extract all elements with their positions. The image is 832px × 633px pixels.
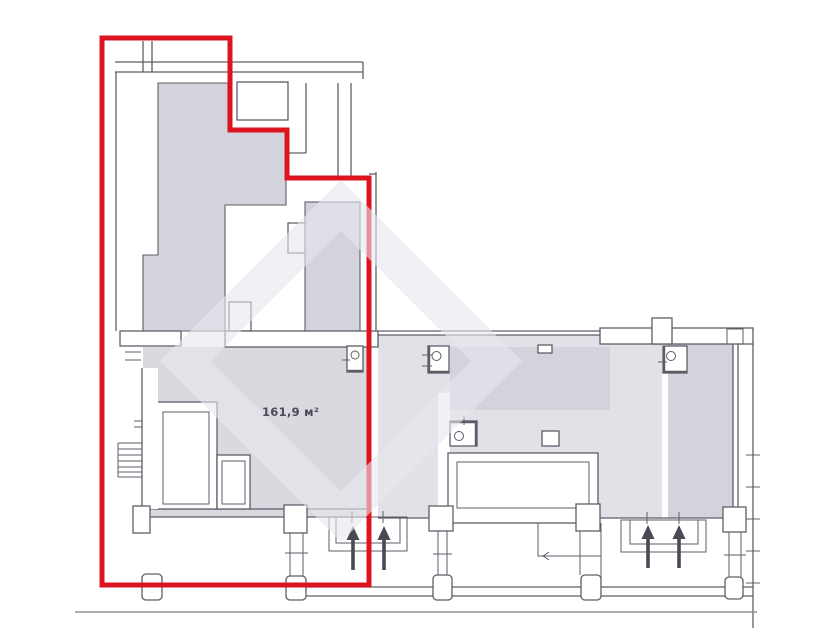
entrance-arrows bbox=[347, 525, 686, 570]
column-small bbox=[542, 431, 559, 446]
room-fills bbox=[143, 83, 733, 518]
room-right-b-dark bbox=[450, 347, 610, 410]
floor-plan: 161,9 м² bbox=[0, 0, 832, 633]
room-small-top bbox=[237, 82, 288, 120]
entrance-arrow-icon bbox=[378, 526, 391, 570]
room-shaft bbox=[305, 202, 360, 332]
room-bath bbox=[157, 402, 217, 509]
entrance-arrow-icon bbox=[642, 525, 655, 568]
floor-plan-canvas bbox=[0, 0, 832, 633]
door-opening bbox=[538, 345, 552, 353]
room-right-c bbox=[610, 335, 662, 518]
stairs-icon bbox=[118, 443, 142, 477]
fixture-icon-3 bbox=[450, 416, 477, 446]
entrance-arrow-icon bbox=[347, 526, 360, 570]
entrance-arrow-icon bbox=[673, 525, 686, 568]
wall-notch bbox=[229, 302, 251, 331]
